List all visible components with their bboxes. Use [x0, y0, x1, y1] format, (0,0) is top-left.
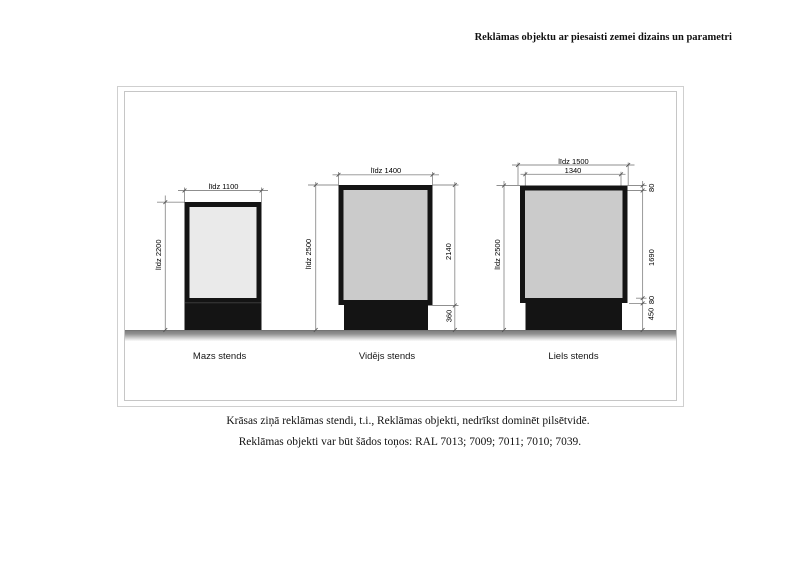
svg-text:Mazs stends: Mazs stends	[193, 351, 247, 362]
svg-text:1340: 1340	[565, 166, 582, 175]
svg-text:80: 80	[647, 184, 656, 192]
svg-text:līdz 1500: līdz 1500	[558, 157, 588, 166]
svg-text:2140: 2140	[444, 243, 453, 260]
svg-text:Liels stends: Liels stends	[548, 351, 598, 362]
svg-text:līdz 1100: līdz 1100	[209, 182, 239, 191]
svg-text:līdz 1400: līdz 1400	[371, 166, 401, 175]
svg-text:1690: 1690	[647, 249, 656, 266]
svg-text:Vidējs stends: Vidējs stends	[359, 351, 416, 362]
svg-text:līdz 2500: līdz 2500	[493, 239, 502, 269]
svg-text:450: 450	[647, 308, 656, 321]
svg-text:līdz 2500: līdz 2500	[304, 239, 313, 269]
svg-text:80: 80	[647, 296, 656, 304]
svg-text:360: 360	[445, 310, 454, 323]
svg-text:līdz 2200: līdz 2200	[154, 239, 163, 269]
